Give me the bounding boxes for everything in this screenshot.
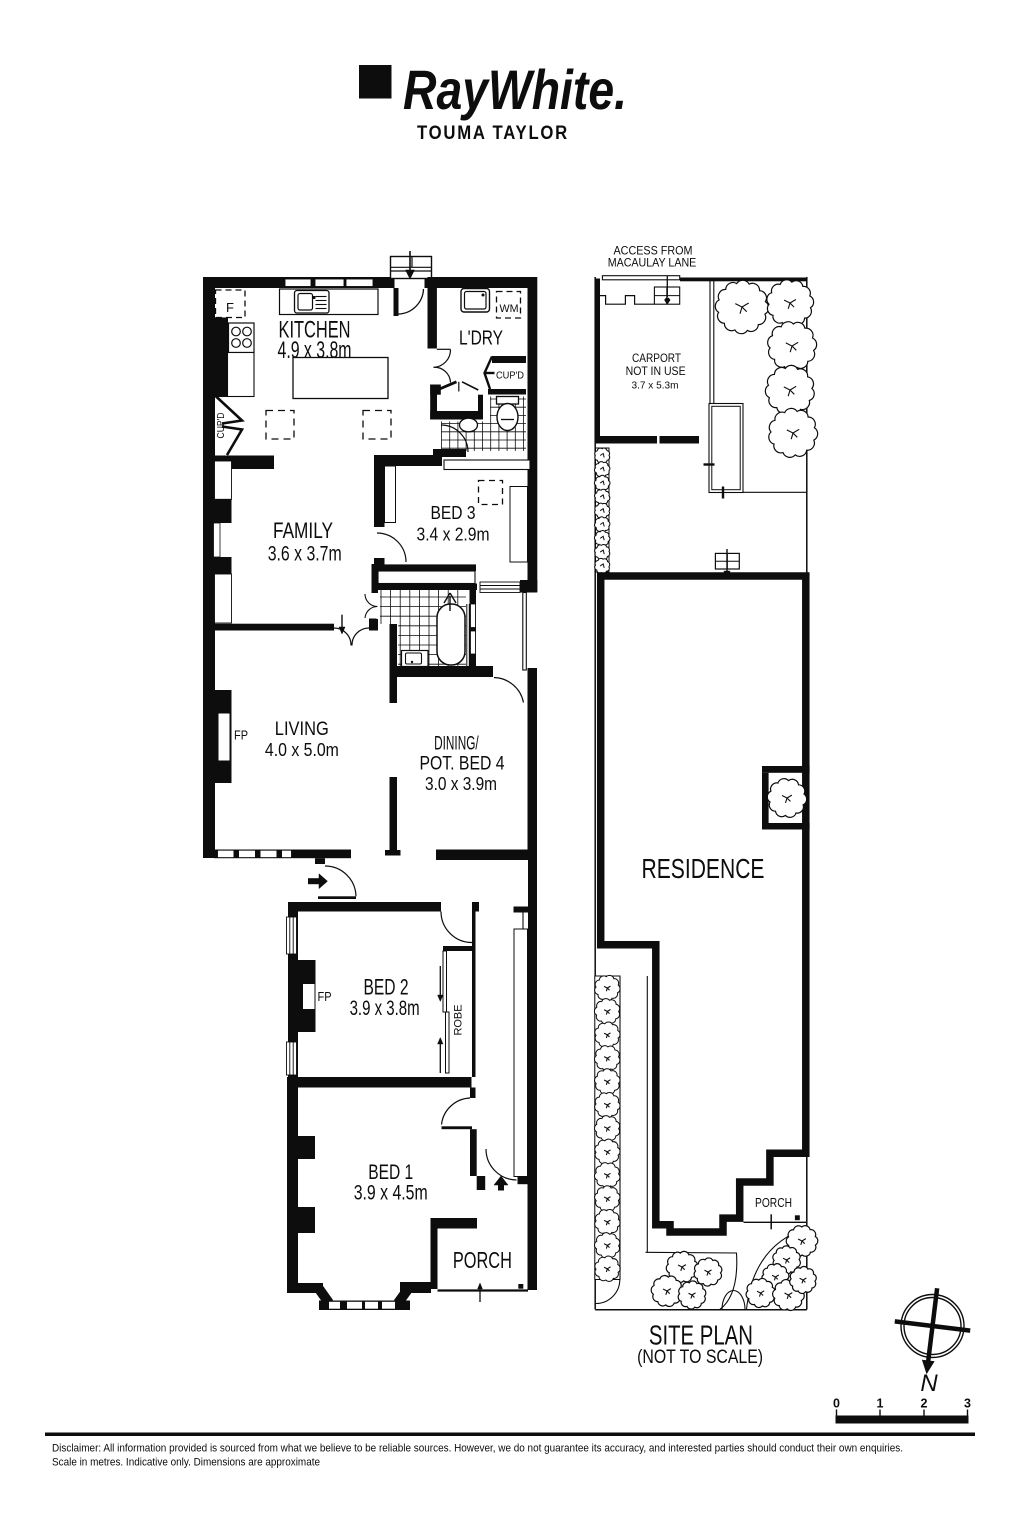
svg-text:3.4 x 2.9m: 3.4 x 2.9m [417, 524, 490, 545]
svg-text:FP: FP [234, 728, 248, 742]
svg-text:3.9 x 4.5m: 3.9 x 4.5m [354, 1182, 428, 1205]
svg-text:CARPORT: CARPORT [632, 352, 681, 365]
svg-text:F: F [226, 300, 234, 315]
svg-text:SITE PLAN: SITE PLAN [649, 1320, 753, 1351]
svg-text:CUP'D: CUP'D [496, 371, 524, 382]
svg-text:MACAULAY LANE: MACAULAY LANE [608, 256, 697, 269]
svg-text:LIVING: LIVING [275, 719, 329, 740]
svg-text:FAMILY: FAMILY [273, 518, 333, 543]
svg-text:POT. BED 4: POT. BED 4 [420, 754, 505, 775]
svg-text:TOUMA TAYLOR: TOUMA TAYLOR [417, 123, 569, 144]
svg-text:BED 2: BED 2 [364, 974, 409, 999]
svg-text:3.6 x 3.7m: 3.6 x 3.7m [268, 543, 342, 566]
svg-text:CUP'D: CUP'D [215, 412, 227, 438]
svg-text:RESIDENCE: RESIDENCE [642, 853, 765, 884]
svg-text:0: 0 [833, 1397, 840, 1411]
svg-text:RayWhite.: RayWhite. [403, 58, 627, 121]
svg-text:4.0 x 5.0m: 4.0 x 5.0m [265, 740, 339, 760]
svg-text:3.0 x 3.9m: 3.0 x 3.9m [425, 774, 497, 794]
svg-text:(NOT TO SCALE): (NOT TO SCALE) [637, 1347, 763, 1368]
svg-text:Scale in metres. Indicative on: Scale in metres. Indicative only. Dimens… [52, 1457, 320, 1469]
svg-text:DINING/: DINING/ [434, 733, 479, 754]
svg-text:WM: WM [500, 303, 519, 315]
svg-text:L'DRY: L'DRY [459, 328, 503, 350]
svg-text:BED 3: BED 3 [431, 502, 476, 523]
svg-text:NOT IN USE: NOT IN USE [626, 365, 686, 378]
svg-text:FP: FP [318, 990, 332, 1004]
svg-text:1: 1 [877, 1397, 884, 1411]
svg-text:3.9 x 3.8m: 3.9 x 3.8m [350, 997, 420, 1020]
svg-text:Disclaimer: All information pr: Disclaimer: All information provided is … [52, 1443, 903, 1455]
svg-text:PORCH: PORCH [755, 1196, 792, 1210]
svg-text:3.7 x 5.3m: 3.7 x 5.3m [632, 379, 679, 391]
svg-text:N: N [920, 1370, 938, 1397]
svg-text:ROBE: ROBE [453, 1005, 465, 1036]
svg-text:PORCH: PORCH [453, 1247, 512, 1273]
svg-text:3: 3 [964, 1397, 971, 1411]
svg-text:2: 2 [921, 1397, 928, 1411]
